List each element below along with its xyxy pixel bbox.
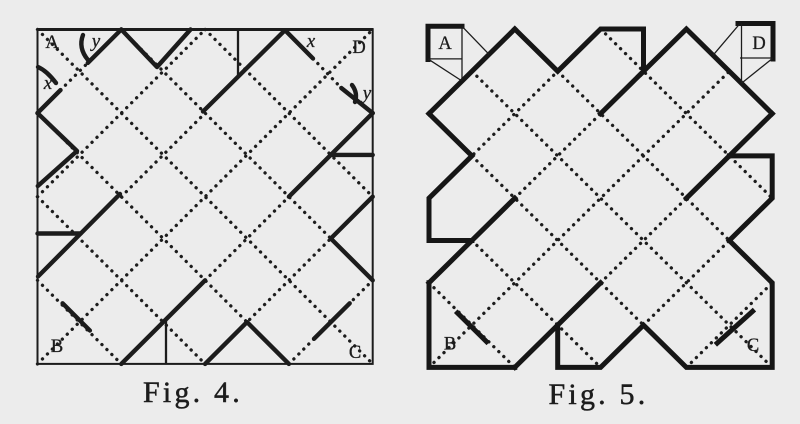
svg-text:D: D — [352, 38, 365, 58]
svg-text:x: x — [306, 31, 316, 52]
svg-text:B: B — [444, 335, 456, 355]
svg-text:y: y — [361, 83, 372, 104]
svg-text:A: A — [45, 33, 59, 53]
svg-text:A: A — [438, 34, 452, 54]
svg-text:Fig. 4.: Fig. 4. — [143, 376, 243, 409]
svg-text:y: y — [90, 31, 101, 52]
svg-text:x: x — [43, 73, 53, 94]
svg-text:Fig. 5.: Fig. 5. — [549, 378, 649, 411]
svg-text:C: C — [747, 336, 759, 356]
svg-text:C: C — [349, 343, 361, 363]
svg-text:D: D — [752, 34, 765, 54]
svg-text:B: B — [51, 337, 63, 357]
